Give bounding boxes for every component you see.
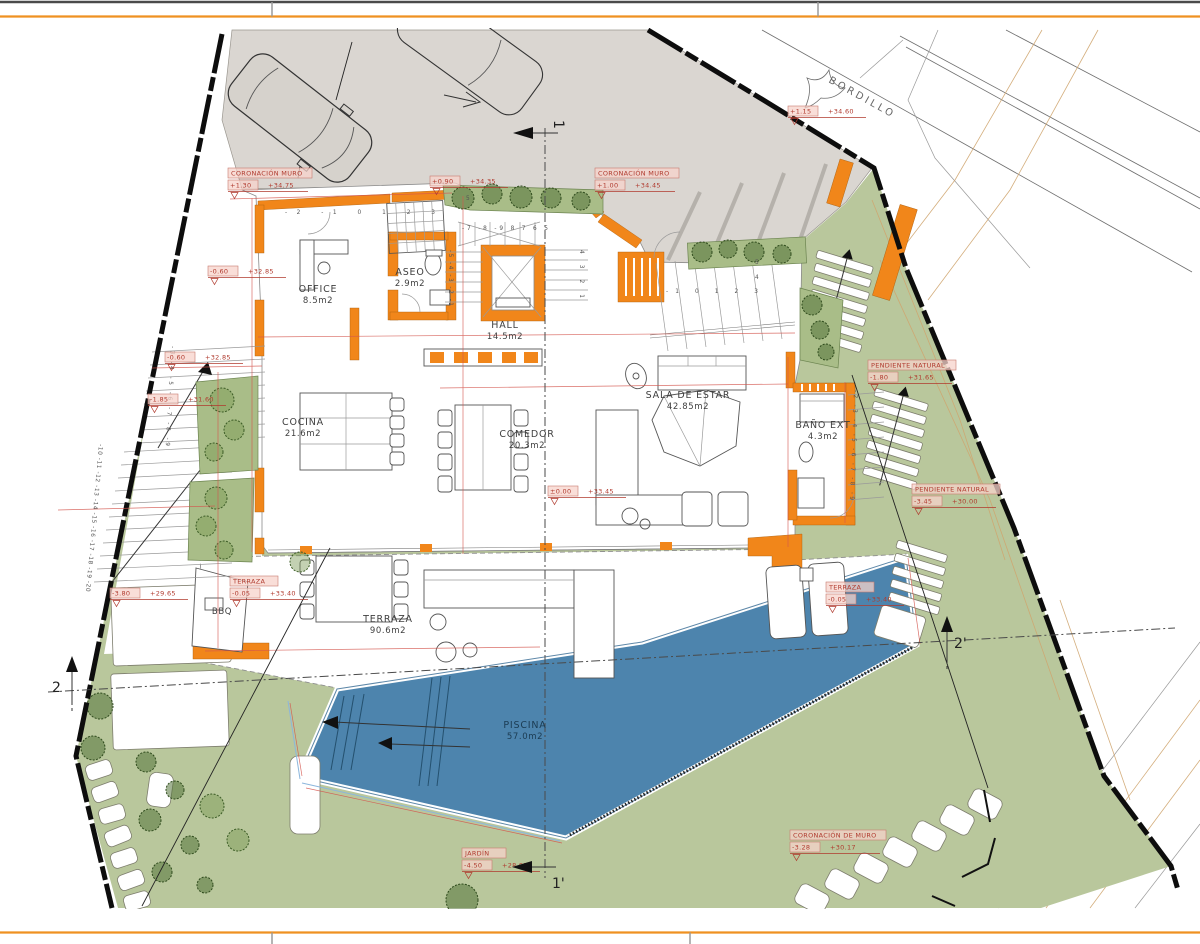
svg-text:+1.30: +1.30 [230,182,251,190]
svg-text:14.5m2: 14.5m2 [487,332,523,342]
svg-text:-10 -11 -12 -13 -14 -15 -16 -1: -10 -11 -12 -13 -14 -15 -16 -17 -18 -19 … [84,444,103,592]
svg-text:4.3m2: 4.3m2 [808,432,838,442]
svg-text:+34.35: +34.35 [470,178,496,186]
svg-text:+29.65: +29.65 [150,590,176,598]
svg-text:+33.45: +33.45 [588,488,614,496]
svg-text:20.3m2: 20.3m2 [509,441,545,451]
svg-text:-5 -4 -3 -2 -1: -5 -4 -3 -2 -1 [447,250,453,306]
svg-text:+33.40: +33.40 [270,590,296,598]
room-comedor: COMEDOR [499,429,554,440]
plan-canvas: BORDILLO OFFICE 8.5m2 ASEO 2.9m2 HALL 14… [0,0,1200,944]
room-cocina: COCINA [282,417,324,428]
floor-plan-sheet: BORDILLO OFFICE 8.5m2 ASEO 2.9m2 HALL 14… [0,0,1200,944]
svg-text:2.9m2: 2.9m2 [395,279,425,289]
svg-text:57.0m2: 57.0m2 [507,732,543,742]
svg-text:CORONACIÓN DE MURO: CORONACIÓN DE MURO [793,831,877,840]
room-office: OFFICE [299,284,338,295]
svg-text:4: 4 [755,275,759,281]
svg-text:90.6m2: 90.6m2 [370,626,406,636]
room-bano: BAÑO EXT [795,420,850,431]
armchair [682,492,712,526]
svg-text:2': 2' [954,636,967,652]
svg-text:+1.15: +1.15 [790,108,811,116]
svg-text:8.5m2: 8.5m2 [303,296,333,306]
room-piscina: PISCINA [503,720,546,731]
svg-text:+34.45: +34.45 [635,182,661,190]
svg-text:JARDÍN: JARDÍN [464,849,489,858]
bath-sink [798,478,824,508]
room-aseo: ASEO [395,267,424,278]
svg-text:-7 -8 -9 8 7 6 5: -7 -8 -9 8 7 6 5 [462,226,548,232]
svg-text:-1.80: -1.80 [870,374,888,382]
svg-text:5: 5 [466,196,470,202]
armchair [718,492,748,526]
svg-text:±0.00: ±0.00 [550,488,571,496]
svg-text:+30.17: +30.17 [830,844,856,852]
svg-text:-1.85: -1.85 [150,396,168,404]
room-terraza: TERRAZA [362,614,413,625]
svg-text:-0.60: -0.60 [167,354,185,362]
section-marker-2-left: 2 [52,656,78,712]
svg-text:+32.85: +32.85 [205,354,231,362]
svg-text:-0.05: -0.05 [232,590,250,598]
svg-text:5: 5 [755,260,759,266]
svg-text:+31.65: +31.65 [908,374,934,382]
svg-text:2: 2 [52,680,61,696]
svg-text:TERRAZA: TERRAZA [828,584,862,592]
svg-text:1: 1 [550,120,566,129]
svg-text:+32.85: +32.85 [248,268,274,276]
svg-text:+31.60: +31.60 [188,396,214,404]
svg-text:-4.50: -4.50 [464,862,482,870]
room-hall: HALL [491,320,518,331]
svg-text:+34.60: +34.60 [828,108,854,116]
svg-text:PENDIENTE NATURAL: PENDIENTE NATURAL [871,362,945,370]
svg-text:-0.05: -0.05 [828,596,846,604]
svg-text:+1.00: +1.00 [597,182,618,190]
svg-text:+30.00: +30.00 [952,498,978,506]
svg-text:CORONACIÓN MURO: CORONACIÓN MURO [231,169,302,178]
svg-text:-3.80: -3.80 [112,590,130,598]
svg-text:+0.90: +0.90 [432,178,453,186]
svg-text:1': 1' [552,876,565,892]
svg-text:+34.75: +34.75 [268,182,294,190]
room-sala: SALA DE ESTAR [646,390,731,401]
svg-text:-0.60: -0.60 [210,268,228,276]
terrace-table [316,556,392,622]
svg-text:TERRAZA: TERRAZA [232,578,266,586]
svg-text:PENDIENTE NATURAL: PENDIENTE NATURAL [915,486,989,494]
room-bbq: BBQ [212,607,232,617]
svg-text:-3.45: -3.45 [914,498,932,506]
svg-text:CORONACIÓN MURO: CORONACIÓN MURO [598,169,669,178]
outdoor-sofa [424,570,574,608]
svg-text:+33.40: +33.40 [866,596,892,604]
svg-text:21.6m2: 21.6m2 [285,429,321,439]
svg-text:42.85m2: 42.85m2 [667,402,709,412]
svg-text:-3.28: -3.28 [792,844,810,852]
